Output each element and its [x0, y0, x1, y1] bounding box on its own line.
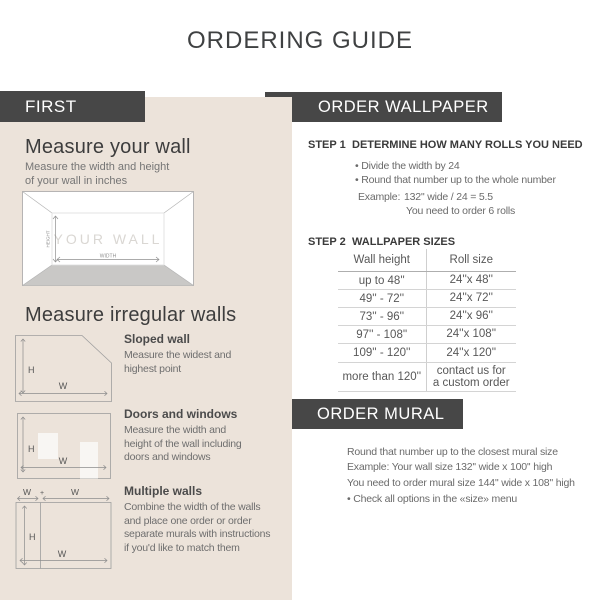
width-arrow-label: WIDTH — [100, 254, 117, 260]
wallpaper-sizes-table: Wall height Roll size up to 48'' 24''x 4… — [338, 249, 516, 392]
order-wallpaper-band: ORDER WALLPAPER — [265, 92, 502, 122]
table-cell: 73'' - 96'' — [338, 308, 426, 325]
table-header-row: Wall height Roll size — [338, 249, 516, 272]
height-arrow-label: HEIGHT — [46, 230, 51, 247]
multiple-walls-diagram: W + W H W — [15, 486, 112, 570]
table-cell: 24''x 48'' — [426, 272, 517, 289]
order-mural-band-label: ORDER MURAL — [317, 405, 444, 423]
multiple-walls-text: Combine the width of the walls and place… — [124, 501, 270, 555]
table-cell: 24''x 72'' — [426, 290, 517, 307]
table-cell: 24''x 120'' — [426, 344, 517, 362]
table-header-wall-height: Wall height — [338, 249, 426, 271]
irregular-walls-heading: Measure irregular walls — [25, 304, 236, 327]
table-row: 109'' - 120'' 24''x 120'' — [338, 344, 516, 363]
first-band: FIRST — [0, 91, 145, 122]
table-cell: 24''x 96'' — [426, 308, 517, 325]
table-row: 97'' - 108'' 24''x 108'' — [338, 326, 516, 344]
step1-bullets: • Divide the width by 24 • Round that nu… — [355, 160, 556, 187]
table-cell: 24''x 108'' — [426, 326, 517, 343]
table-cell: contact us for a custom order — [426, 363, 517, 391]
table-row: 73'' - 96'' 24''x 96'' — [338, 308, 516, 326]
table-cell: 97'' - 108'' — [338, 326, 426, 343]
mural-line-1: Round that number up to the closest mura… — [347, 446, 558, 460]
doors-windows-text: Measure the width and height of the wall… — [124, 424, 242, 465]
table-cell: up to 48'' — [338, 272, 426, 289]
doors-w-label: W — [59, 456, 68, 466]
table-header-roll-size: Roll size — [426, 249, 517, 271]
page-title: ORDERING GUIDE — [0, 27, 600, 55]
order-mural-band: ORDER MURAL — [292, 399, 463, 429]
step1-example-value: 132'' wide / 24 = 5.5 — [404, 191, 493, 205]
step1-bullet-2: • Round that number up to the whole numb… — [355, 174, 556, 188]
multiple-walls-label: Multiple walls — [124, 484, 202, 498]
sloped-wall-diagram: H W — [15, 335, 112, 402]
window-shape — [38, 433, 58, 459]
sloped-wall-label: Sloped wall — [124, 332, 190, 346]
sloped-wall-text: Measure the widest and highest point — [124, 349, 231, 376]
table-row: more than 120'' contact us for a custom … — [338, 363, 516, 392]
multiple-top-w2-label: W — [71, 487, 79, 497]
step2-title: WALLPAPER SIZES — [352, 236, 455, 248]
sloped-w-label: W — [59, 381, 68, 391]
multiple-w-label: W — [58, 549, 67, 559]
ordering-guide-page: ORDERING GUIDE ORDER WALLPAPER FIRST ORD… — [0, 0, 600, 600]
table-cell: 49'' - 72'' — [338, 290, 426, 307]
wall-perspective-diagram: YOUR WALL HEIGHT WIDTH — [22, 191, 194, 286]
step2-label: STEP 2 — [308, 236, 346, 248]
step1-example-result: You need to order 6 rolls — [406, 205, 515, 219]
step1-title: DETERMINE HOW MANY ROLLS YOU NEED — [352, 139, 583, 151]
doors-windows-label: Doors and windows — [124, 407, 237, 421]
table-cell: 109'' - 120'' — [338, 344, 426, 362]
your-wall-label: YOUR WALL — [54, 231, 163, 247]
mural-line-3: You need to order mural size 144'' wide … — [347, 477, 575, 491]
measure-wall-subtext: Measure the width and height of your wal… — [25, 160, 169, 188]
multiple-plus-label: + — [40, 490, 44, 497]
measure-wall-heading: Measure your wall — [25, 136, 191, 159]
doors-windows-diagram: H W — [17, 413, 111, 479]
first-band-label: FIRST — [25, 97, 77, 116]
table-row: 49'' - 72'' 24''x 72'' — [338, 290, 516, 308]
table-cell: more than 120'' — [338, 363, 426, 391]
table-row: up to 48'' 24''x 48'' — [338, 272, 516, 290]
multiple-h-label: H — [29, 532, 36, 542]
step1-example-label: Example: — [358, 191, 400, 205]
door-shape — [80, 442, 98, 479]
step1-label: STEP 1 — [308, 139, 346, 151]
step1-bullet-1: • Divide the width by 24 — [355, 160, 556, 174]
doors-h-label: H — [28, 444, 35, 454]
mural-line-2: Example: Your wall size 132'' wide x 100… — [347, 461, 552, 475]
multiple-top-w1-label: W — [23, 487, 31, 497]
sloped-h-label: H — [28, 365, 35, 375]
mural-line-4: • Check all options in the «size» menu — [347, 493, 517, 507]
order-wallpaper-band-label: ORDER WALLPAPER — [318, 98, 489, 116]
